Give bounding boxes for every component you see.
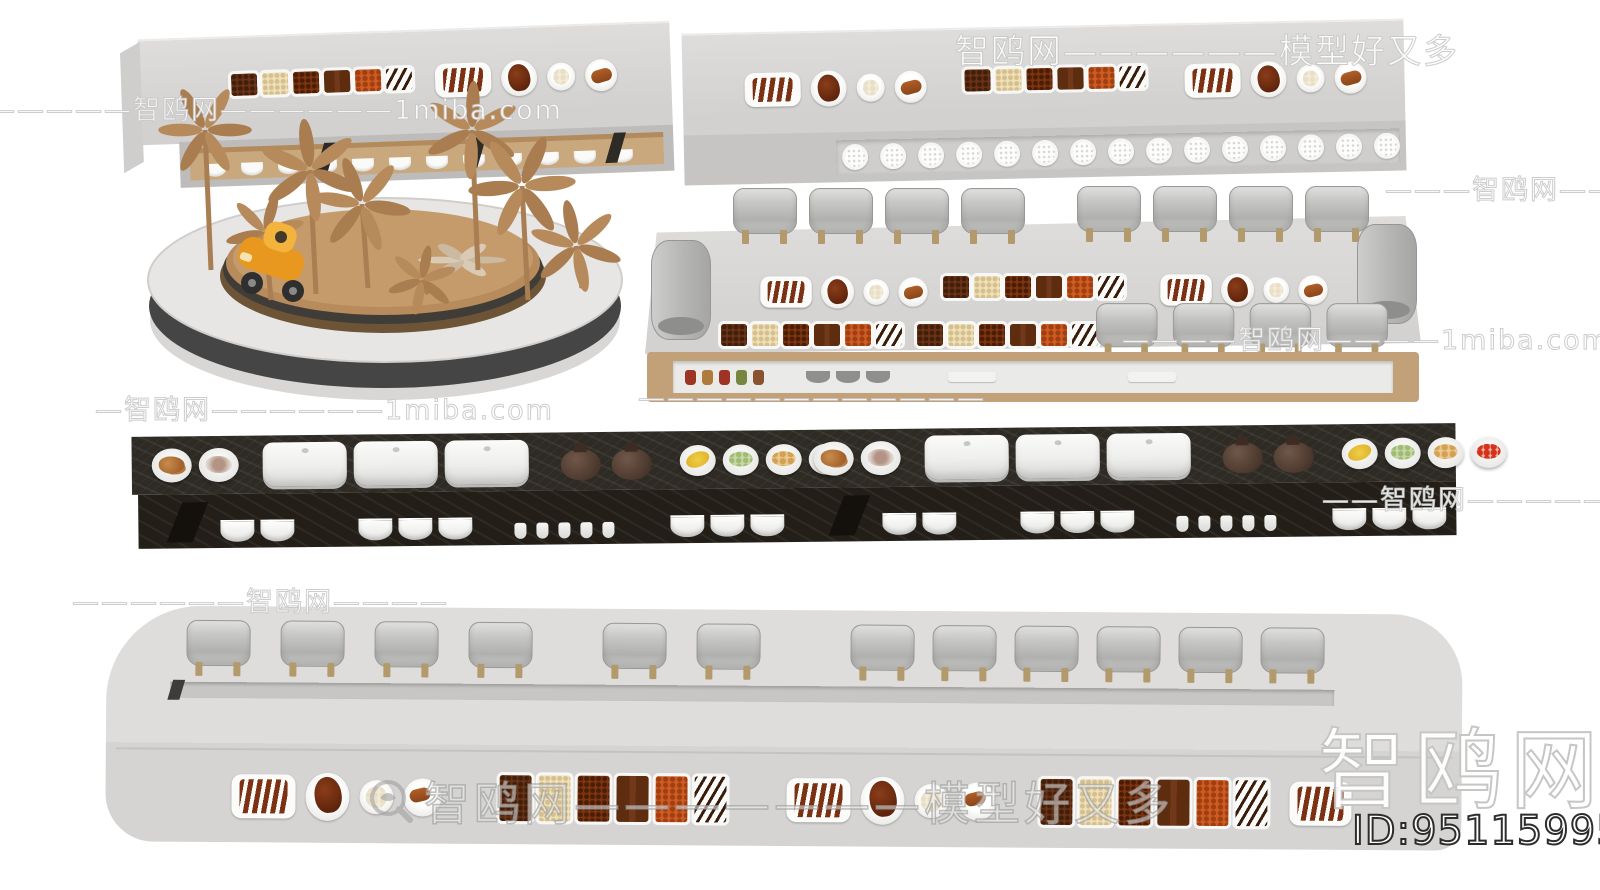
banana-bowl (680, 444, 716, 475)
front-urn-row (1096, 303, 1388, 357)
chafing-cloche (263, 442, 347, 487)
choc (917, 324, 943, 346)
choc (1118, 779, 1150, 825)
roast-duck-plate (1221, 273, 1254, 306)
meatball-bowl (1428, 436, 1464, 467)
plate-stack (1332, 508, 1366, 530)
cplate (880, 143, 907, 170)
choc (1036, 276, 1062, 298)
dumpling-plate (1263, 277, 1289, 303)
chocolate-tray-group (943, 276, 1124, 298)
plate-stack (220, 520, 254, 542)
counter-top-right (681, 18, 1406, 185)
plate-stack (710, 515, 744, 537)
choc (694, 776, 726, 822)
cup-stack (1264, 515, 1276, 531)
dish-group (760, 275, 927, 308)
jar (702, 370, 713, 385)
bowl-stack (806, 371, 830, 383)
counter-groove (170, 682, 1334, 706)
roast-duck-plate (305, 773, 349, 821)
plate-stack (1372, 508, 1406, 530)
urn (186, 620, 250, 676)
dark-counter-module (813, 430, 1475, 481)
teapot (610, 441, 654, 479)
chocolate-tray-group (964, 66, 1145, 92)
choc (655, 776, 687, 822)
cup-stack (558, 522, 570, 538)
ribs-tray (1184, 63, 1241, 98)
urn (809, 188, 873, 244)
urn (1096, 626, 1160, 682)
cplate (1184, 137, 1211, 164)
choc (964, 69, 990, 92)
choc (1235, 780, 1267, 826)
dish-group (786, 776, 996, 825)
cplate (918, 142, 945, 169)
ribs-tray (744, 72, 801, 107)
choc (721, 324, 747, 346)
dumpling-plate (914, 784, 948, 818)
bread-plate (1334, 61, 1367, 94)
plate-stack (882, 513, 916, 535)
urn (1077, 186, 1141, 242)
grape-bowl (1385, 437, 1421, 468)
plate-stack (1060, 511, 1094, 533)
choc (616, 776, 648, 822)
plate-stack (1100, 510, 1134, 532)
ribs-tray (231, 774, 295, 818)
cplate (1108, 138, 1135, 165)
roast-duck-plate (821, 275, 854, 308)
counter-with-urns (645, 186, 1421, 402)
urn (1326, 303, 1387, 357)
dark-counter-module (152, 437, 814, 488)
choc (1079, 779, 1111, 825)
jar (736, 370, 747, 385)
choc (1010, 324, 1036, 346)
dark-counter-front-module (836, 485, 1456, 536)
plate-stack (358, 518, 392, 540)
plate-stack (1020, 511, 1054, 533)
back-urn-row-left (733, 188, 1025, 244)
choc (876, 324, 902, 346)
cplate (1146, 137, 1173, 164)
choc (499, 775, 531, 821)
cplate (1260, 135, 1287, 162)
urn (1250, 303, 1311, 357)
chafing-cloche (445, 440, 529, 485)
end-barrel-left (651, 240, 711, 340)
urn (1178, 627, 1242, 683)
dumpling-plate (1296, 64, 1325, 93)
choc (943, 276, 969, 298)
chocolate-tray-group (499, 775, 726, 823)
bread-plate (898, 277, 927, 306)
urn (1153, 186, 1217, 242)
ribs-tray (1160, 274, 1212, 305)
jar (719, 370, 730, 385)
cplate (1070, 139, 1097, 166)
choc (1057, 67, 1083, 90)
cplate (1298, 134, 1325, 161)
chafing-cloche (1106, 433, 1190, 478)
ribs-tray (760, 276, 812, 307)
roast-duck-plate (1250, 61, 1287, 98)
choc (1196, 780, 1228, 826)
urn-counter-wood-base (647, 352, 1419, 402)
ribs-tray (786, 778, 850, 822)
dish-group (1184, 59, 1367, 99)
dish-group (744, 68, 927, 108)
plate-stack (398, 518, 432, 540)
cup-stack (580, 522, 592, 538)
cplate (1374, 133, 1401, 160)
choc (752, 324, 778, 346)
dumpling-plate (359, 780, 393, 814)
dark-marble-counter (131, 423, 1456, 549)
white-tray (1128, 372, 1176, 382)
choc (783, 324, 809, 346)
model-id-label: ID:951159952 (1352, 808, 1600, 854)
chafing-cloche (924, 435, 1008, 480)
cplate (1222, 136, 1249, 163)
urn (961, 188, 1025, 244)
cocoa-bowl (861, 441, 901, 475)
plate-shelf (836, 129, 1401, 175)
teapot (559, 442, 603, 480)
urn (1229, 186, 1293, 242)
choc (995, 68, 1021, 91)
dark-counter-front-module (174, 492, 836, 543)
urn (280, 620, 344, 676)
bread-plate (403, 778, 441, 816)
bread-plate (958, 782, 996, 820)
urn (602, 623, 666, 679)
bread-plate (1298, 275, 1327, 304)
counter-top-right-surface (681, 18, 1405, 137)
choc (1005, 276, 1031, 298)
plate-stack (922, 512, 956, 534)
windmill-sculpture-platform (140, 70, 630, 400)
meatball-bowl (766, 443, 802, 474)
choc (979, 324, 1005, 346)
jar (753, 370, 764, 385)
bowl-stack (836, 371, 860, 383)
bottom-urn-row (186, 620, 1324, 684)
choc (1088, 67, 1114, 90)
bowl-stack (866, 371, 890, 383)
berry-bowl (1471, 436, 1507, 467)
cplate (1336, 133, 1363, 160)
dumpling-plate (863, 279, 889, 305)
cup-stack (1176, 516, 1188, 532)
chafing-cloche (1015, 434, 1099, 479)
croissant-plate (152, 448, 192, 482)
choc (948, 324, 974, 346)
cplate (1032, 140, 1059, 167)
choc (538, 775, 570, 821)
cup-stack (1242, 515, 1254, 531)
cup-stack (1198, 516, 1210, 532)
cplate (994, 141, 1021, 168)
urn (696, 623, 760, 679)
cup-stack (536, 523, 548, 539)
choc (1119, 66, 1145, 89)
dish-group (1160, 273, 1327, 306)
roast-duck-plate (810, 70, 847, 107)
choc (1041, 324, 1067, 346)
choc (845, 324, 871, 346)
dish-group (231, 772, 441, 821)
grape-bowl (723, 444, 759, 475)
urn (885, 188, 949, 244)
roast-duck-plate (860, 777, 904, 825)
cocoa-bowl (199, 448, 239, 482)
urn (733, 188, 797, 244)
choc (974, 276, 1000, 298)
choc (1040, 779, 1072, 825)
chocolate-tray-group (721, 324, 902, 346)
choc (1026, 68, 1052, 91)
plate-stack (1412, 507, 1446, 529)
cup-stack (514, 523, 526, 539)
white-tray (948, 372, 996, 382)
urn (468, 622, 532, 678)
chocolate-tray-group (917, 324, 1098, 346)
cup-stack (602, 522, 614, 538)
teapot (1271, 435, 1315, 473)
bottom-food-row (231, 756, 1352, 844)
cplate (842, 144, 869, 171)
plate-stack (260, 519, 294, 541)
plate-stack (670, 515, 704, 537)
chocolate-tray-group (1040, 779, 1267, 827)
bread-plate (894, 70, 927, 103)
base-shelf (673, 361, 1393, 393)
banana-bowl (1342, 437, 1378, 468)
choc (1067, 276, 1093, 298)
3d-model-preview: —————智鸥网——————1miba.com 智鸥网——————模型好又多 —… (0, 0, 1600, 890)
choc (814, 324, 840, 346)
urn (1014, 626, 1078, 682)
urn (932, 625, 996, 681)
teapot (1220, 435, 1264, 473)
plate-stack (750, 514, 784, 536)
choc (1072, 324, 1098, 346)
urn (1260, 627, 1324, 683)
chafing-cloche (354, 441, 438, 486)
choc (577, 776, 609, 822)
dumpling-plate (856, 73, 885, 102)
urn (850, 624, 914, 680)
urn (1096, 303, 1157, 357)
choc (1098, 276, 1124, 298)
back-urn-row-right (1077, 186, 1369, 242)
bottom-rounded-counter (105, 605, 1463, 850)
urn (374, 621, 438, 677)
urn (1173, 303, 1234, 357)
jar-row (685, 370, 764, 385)
cup-stack (1220, 515, 1232, 531)
croissant-plate (814, 441, 854, 475)
front-divider (166, 502, 208, 543)
plate-stack (438, 517, 472, 539)
cplate (956, 141, 983, 168)
jar (685, 370, 696, 385)
choc (1157, 780, 1189, 826)
